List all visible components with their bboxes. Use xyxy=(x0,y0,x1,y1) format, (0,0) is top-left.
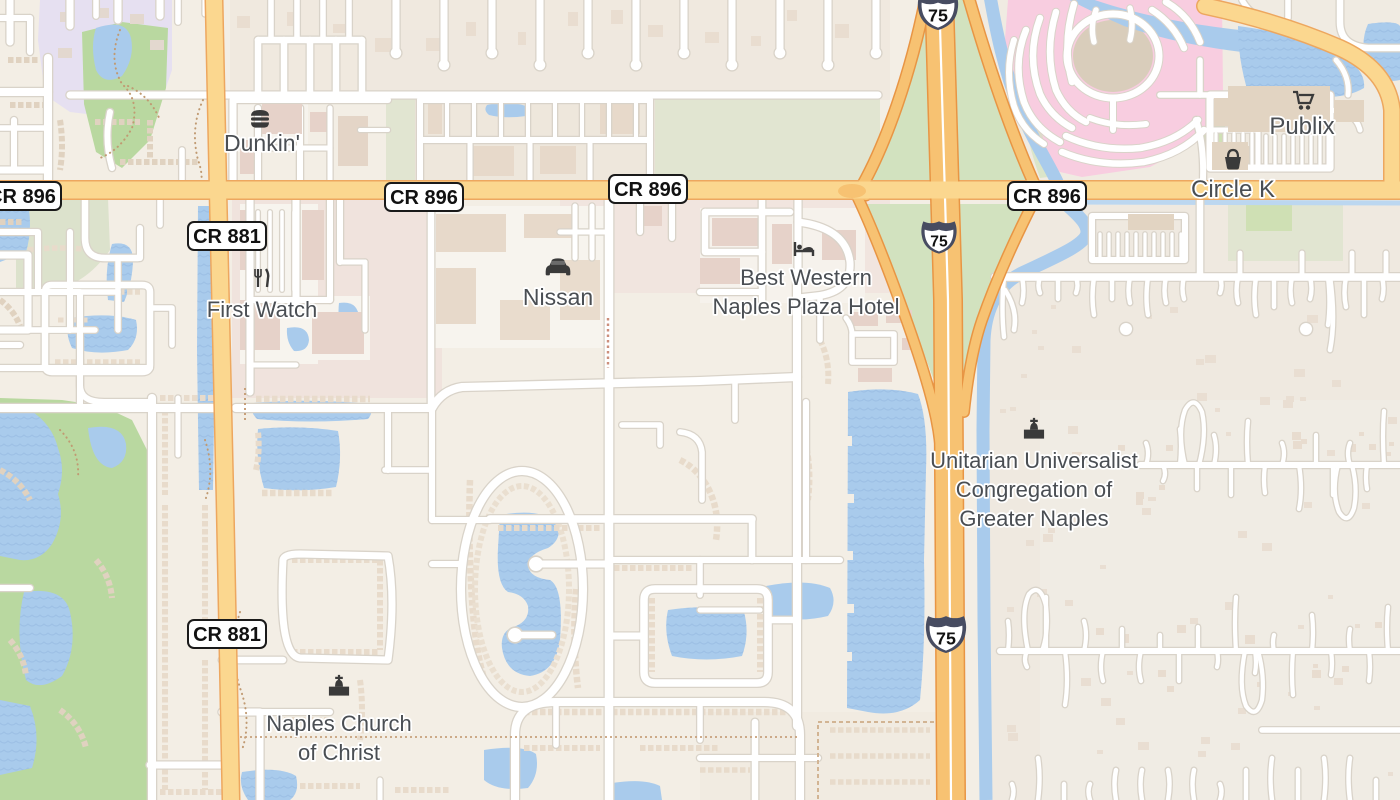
svg-text:75: 75 xyxy=(930,233,948,250)
svg-text:Best Western: Best Western xyxy=(740,265,872,290)
svg-text:Unitarian Universalist: Unitarian Universalist xyxy=(930,448,1138,473)
svg-text:Circle K: Circle K xyxy=(1191,176,1275,203)
svg-text:Congregation of: Congregation of xyxy=(956,477,1113,502)
svg-text:First Watch: First Watch xyxy=(207,297,317,322)
svg-text:CR 881: CR 881 xyxy=(193,624,261,646)
svg-text:Publix: Publix xyxy=(1269,113,1334,140)
svg-text:CR 896: CR 896 xyxy=(0,186,56,208)
svg-text:CR 896: CR 896 xyxy=(1013,186,1081,208)
svg-text:CR 881: CR 881 xyxy=(193,226,261,248)
svg-text:of Christ: of Christ xyxy=(298,740,380,765)
svg-text:Naples Church: Naples Church xyxy=(266,711,412,736)
svg-text:75: 75 xyxy=(928,6,948,26)
svg-text:Nissan: Nissan xyxy=(523,284,593,310)
svg-text:CR 896: CR 896 xyxy=(390,187,458,209)
svg-text:Naples Plaza Hotel: Naples Plaza Hotel xyxy=(712,294,899,319)
svg-text:Dunkin': Dunkin' xyxy=(224,130,300,156)
svg-text:75: 75 xyxy=(936,629,956,649)
svg-text:Greater Naples: Greater Naples xyxy=(959,506,1108,531)
svg-text:CR 896: CR 896 xyxy=(614,179,682,201)
